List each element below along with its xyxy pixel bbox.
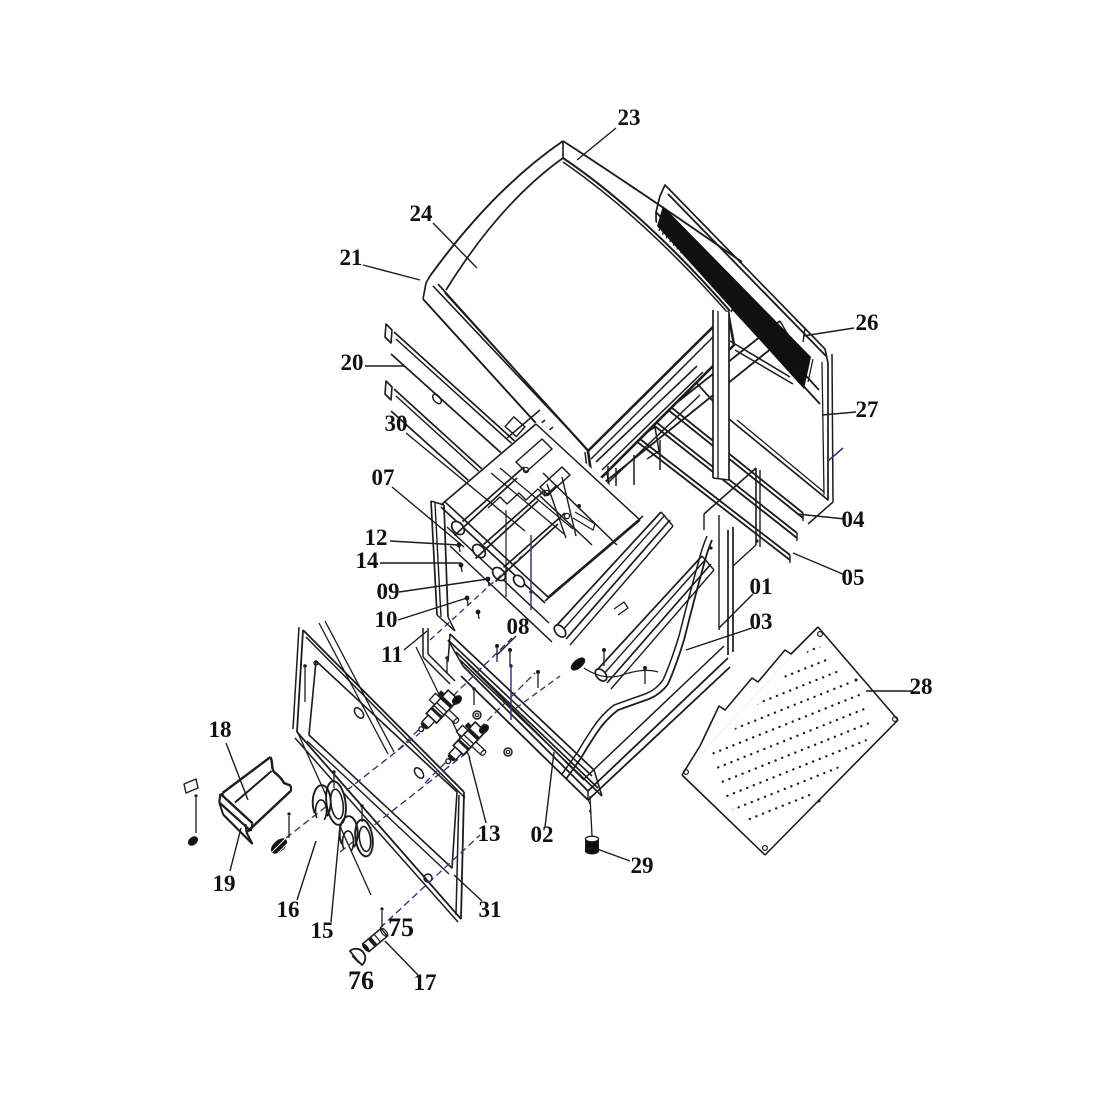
svg-text:27: 27 bbox=[856, 397, 879, 422]
svg-text:29: 29 bbox=[631, 853, 654, 878]
svg-text:15: 15 bbox=[311, 918, 334, 943]
svg-text:01: 01 bbox=[750, 574, 773, 599]
svg-text:12: 12 bbox=[365, 525, 388, 550]
svg-text:21: 21 bbox=[340, 245, 363, 270]
svg-text:20: 20 bbox=[341, 350, 364, 375]
svg-text:08: 08 bbox=[507, 614, 530, 639]
svg-text:10: 10 bbox=[375, 607, 398, 632]
svg-text:05: 05 bbox=[842, 565, 865, 590]
svg-text:75: 75 bbox=[388, 913, 414, 942]
svg-text:17: 17 bbox=[414, 970, 437, 995]
svg-text:76: 76 bbox=[348, 966, 374, 995]
svg-text:28: 28 bbox=[910, 674, 933, 699]
svg-text:03: 03 bbox=[750, 609, 773, 634]
svg-text:26: 26 bbox=[856, 310, 879, 335]
svg-text:18: 18 bbox=[209, 717, 232, 742]
svg-text:04: 04 bbox=[842, 507, 866, 532]
svg-text:13: 13 bbox=[478, 821, 501, 846]
svg-text:23: 23 bbox=[618, 105, 641, 130]
svg-text:11: 11 bbox=[381, 642, 403, 667]
svg-text:16: 16 bbox=[277, 897, 300, 922]
svg-text:30: 30 bbox=[385, 411, 408, 436]
svg-text:14: 14 bbox=[356, 548, 380, 573]
svg-text:19: 19 bbox=[213, 871, 236, 896]
svg-text:31: 31 bbox=[479, 897, 502, 922]
svg-text:02: 02 bbox=[531, 822, 554, 847]
svg-text:07: 07 bbox=[372, 465, 395, 490]
svg-text:24: 24 bbox=[410, 201, 434, 226]
svg-text:09: 09 bbox=[377, 579, 400, 604]
